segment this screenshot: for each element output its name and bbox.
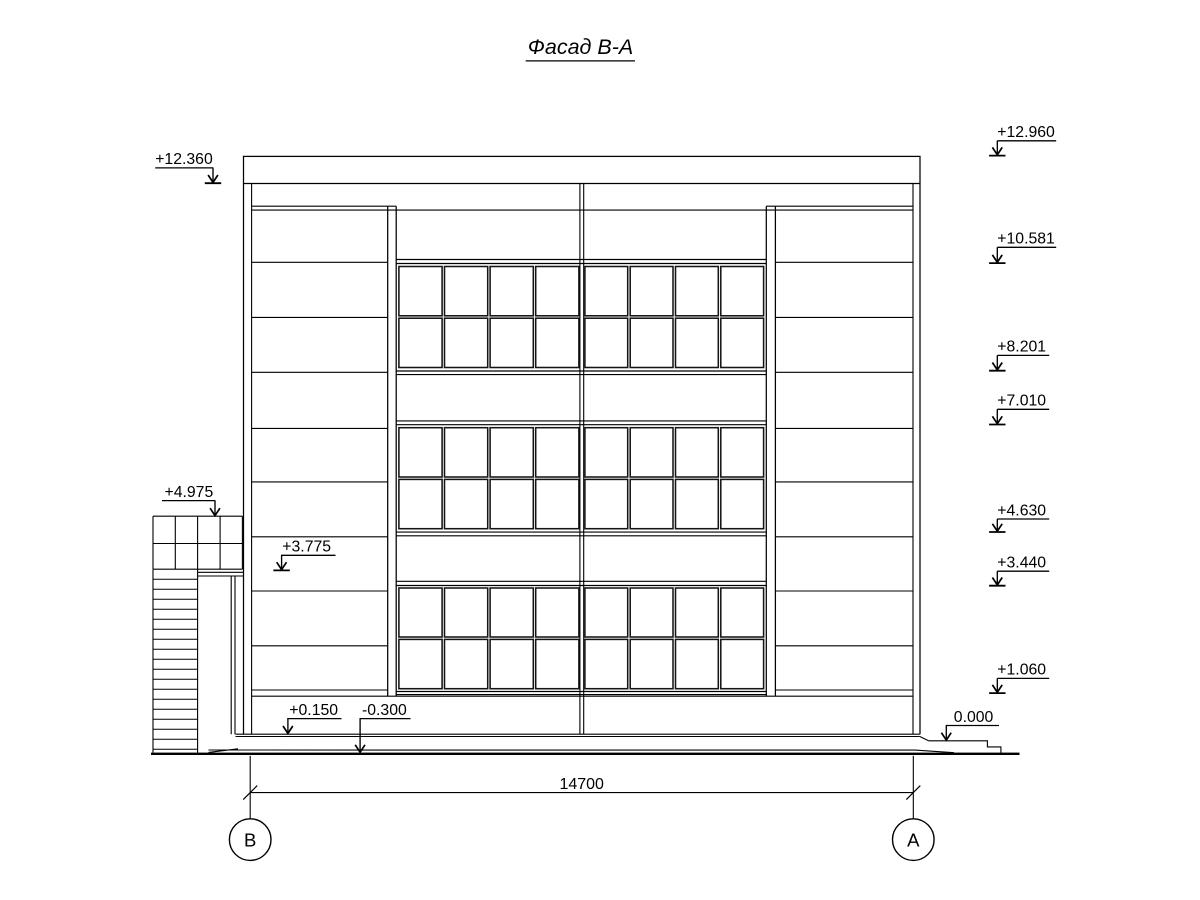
svg-text:+12.360: +12.360 [155,151,213,168]
svg-text:+1.060: +1.060 [997,662,1046,679]
svg-text:+10.581: +10.581 [997,231,1055,248]
svg-text:0.000: 0.000 [954,709,994,726]
svg-text:+8.201: +8.201 [997,339,1046,356]
svg-text:+4.975: +4.975 [165,484,214,501]
svg-text:+3.440: +3.440 [997,555,1046,572]
svg-text:+3.775: +3.775 [282,539,331,556]
svg-text:-0.300: -0.300 [362,702,407,719]
svg-text:+12.960: +12.960 [997,124,1055,141]
svg-text:+0.150: +0.150 [289,702,338,719]
svg-text:+7.010: +7.010 [997,393,1046,410]
svg-text:14700: 14700 [559,776,604,793]
svg-text:+4.630: +4.630 [997,502,1046,519]
svg-text:В: В [244,829,256,850]
svg-text:Фасад В-А: Фасад В-А [528,35,633,59]
svg-text:А: А [907,829,920,850]
